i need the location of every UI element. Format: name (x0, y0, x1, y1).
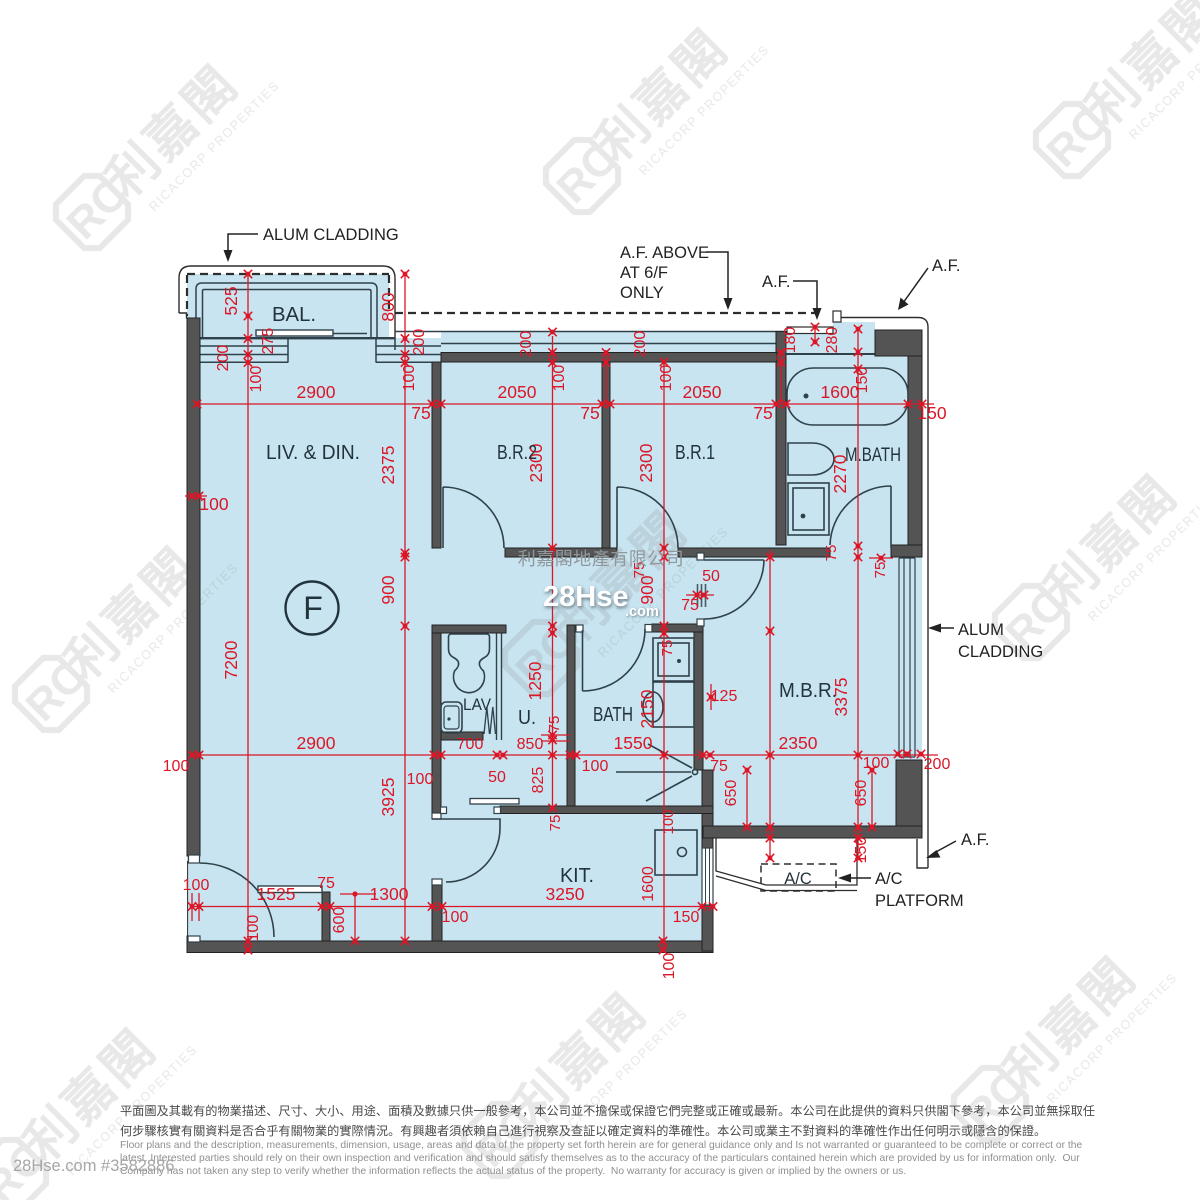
svg-text:75: 75 (317, 875, 335, 892)
svg-text:1550: 1550 (614, 733, 653, 753)
svg-text:A/C: A/C (784, 870, 812, 888)
svg-text:100: 100 (245, 915, 262, 942)
svg-text:1600: 1600 (821, 382, 860, 402)
svg-text:700: 700 (457, 736, 484, 753)
svg-text:1250: 1250 (525, 661, 545, 700)
svg-text:50: 50 (702, 568, 720, 585)
svg-text:100: 100 (163, 758, 190, 775)
svg-text:100: 100 (183, 877, 210, 894)
svg-text:800: 800 (378, 292, 398, 321)
svg-text:900: 900 (637, 575, 657, 604)
svg-text:200: 200 (924, 756, 951, 773)
svg-text:75: 75 (710, 758, 728, 775)
svg-text:LIV. & DIN.: LIV. & DIN. (266, 442, 360, 464)
svg-text:650: 650 (723, 780, 740, 807)
svg-text:BATH: BATH (593, 704, 633, 726)
svg-text:ALUM CLADDING: ALUM CLADDING (263, 226, 399, 244)
svg-text:1600: 1600 (640, 866, 657, 902)
svg-text:BAL.: BAL. (272, 304, 316, 326)
svg-text:2300: 2300 (636, 443, 656, 482)
svg-text:75: 75 (547, 815, 564, 832)
svg-text:2900: 2900 (297, 733, 336, 753)
svg-text:75: 75 (681, 597, 699, 614)
svg-text:M.BATH: M.BATH (845, 445, 901, 466)
svg-text:850: 850 (517, 736, 544, 753)
svg-text:650: 650 (853, 780, 870, 807)
svg-text:F: F (303, 590, 323, 626)
svg-text:75: 75 (546, 716, 563, 733)
svg-text:CLADDING: CLADDING (958, 643, 1043, 661)
svg-text:2375: 2375 (378, 446, 398, 485)
svg-text:7200: 7200 (221, 640, 241, 679)
svg-text:A/C: A/C (875, 870, 903, 888)
svg-text:150: 150 (853, 837, 870, 864)
svg-text:100: 100 (199, 494, 228, 514)
svg-text:75: 75 (659, 640, 676, 657)
svg-text:100: 100 (658, 365, 675, 392)
svg-text:1525: 1525 (257, 884, 296, 904)
svg-text:275: 275 (260, 328, 277, 355)
svg-text:KIT.: KIT. (560, 865, 594, 887)
svg-text:1300: 1300 (370, 884, 409, 904)
svg-text:B.R.1: B.R.1 (675, 442, 715, 464)
svg-text:3250: 3250 (546, 884, 585, 904)
svg-text:.com: .com (625, 604, 659, 620)
svg-text:AT 6/F: AT 6/F (620, 264, 668, 282)
svg-text:28Hse: 28Hse (543, 581, 628, 613)
svg-text:100: 100 (407, 771, 434, 788)
svg-text:825: 825 (530, 767, 547, 794)
svg-text:ALUM: ALUM (958, 621, 1004, 639)
svg-text:150: 150 (673, 909, 700, 926)
svg-text:100: 100 (661, 953, 678, 980)
svg-text:75: 75 (580, 403, 599, 423)
svg-text:3925: 3925 (378, 778, 398, 817)
svg-text:2350: 2350 (779, 733, 818, 753)
svg-text:A.F. ABOVE: A.F. ABOVE (620, 244, 709, 262)
svg-text:200: 200 (518, 331, 535, 358)
svg-text:200: 200 (411, 329, 428, 356)
svg-text:100: 100 (551, 365, 568, 392)
svg-text:U.: U. (518, 707, 536, 729)
svg-text:180: 180 (782, 327, 799, 354)
svg-text:900: 900 (378, 575, 398, 604)
svg-text:100: 100 (248, 366, 265, 393)
svg-text:100: 100 (582, 758, 609, 775)
svg-text:100: 100 (401, 365, 418, 392)
svg-text:PLATFORM: PLATFORM (875, 892, 964, 910)
svg-text:ONLY: ONLY (620, 284, 664, 302)
svg-text:A.F.: A.F. (762, 273, 790, 291)
svg-text:2900: 2900 (297, 382, 336, 402)
svg-text:A.F.: A.F. (961, 831, 989, 849)
svg-text:100: 100 (660, 809, 677, 834)
svg-text:M.B.R.: M.B.R. (779, 680, 837, 702)
svg-text:50: 50 (488, 769, 506, 786)
svg-text:75: 75 (823, 545, 840, 562)
svg-text:125: 125 (711, 688, 738, 705)
svg-text:280: 280 (824, 327, 841, 354)
svg-text:A.F.: A.F. (932, 257, 960, 275)
svg-text:LAV: LAV (463, 695, 492, 714)
svg-text:200: 200 (632, 331, 649, 358)
svg-text:150: 150 (917, 403, 946, 423)
svg-text:200: 200 (215, 345, 232, 372)
svg-text:2050: 2050 (683, 382, 722, 402)
svg-text:2150: 2150 (637, 689, 657, 728)
svg-text:2050: 2050 (498, 382, 537, 402)
svg-text:75: 75 (753, 403, 772, 423)
svg-text:100: 100 (442, 909, 469, 926)
svg-text:B.R.2: B.R.2 (497, 442, 537, 464)
svg-text:利嘉閣地產有限公司: 利嘉閣地產有限公司 (518, 549, 685, 569)
svg-text:75: 75 (411, 403, 430, 423)
svg-text:75: 75 (872, 562, 889, 579)
svg-text:525: 525 (221, 286, 241, 315)
svg-text:600: 600 (331, 907, 348, 934)
svg-text:100: 100 (863, 755, 890, 772)
